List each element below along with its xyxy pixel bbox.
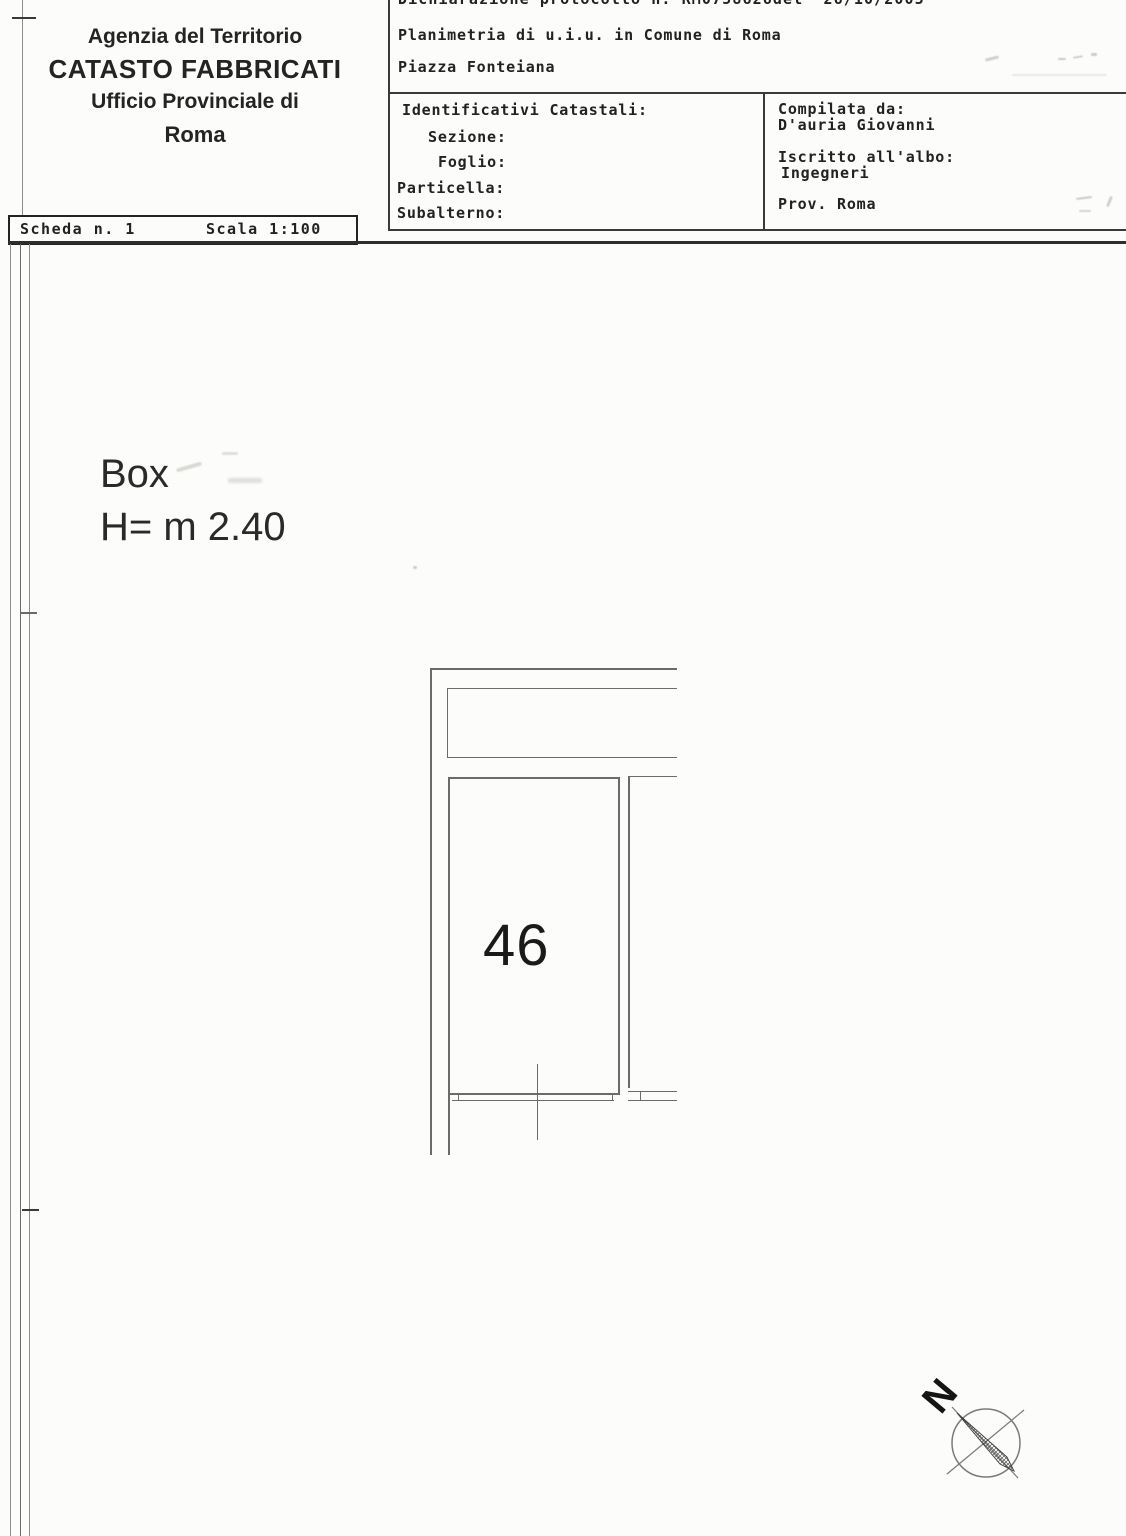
subalterno-label: Subalterno: (397, 204, 505, 222)
plan-neighbor-wall-top (628, 776, 677, 777)
plan-right-extension-bottom (628, 1100, 677, 1101)
sezione-label: Sezione: (428, 128, 507, 146)
registration-tick-low (22, 1209, 39, 1211)
scan-artifact (1091, 53, 1097, 56)
plan-outer-wall-top (430, 668, 677, 670)
particella-label: Particella: (397, 179, 505, 197)
plan-right-extension-top (628, 1091, 677, 1092)
plan-room-wall-top (448, 777, 620, 779)
protocol-line: Dichiarazione protocollo n. RM0758626del… (398, 0, 925, 8)
scan-artifact (176, 461, 202, 472)
scala-value: Scala 1:100 (206, 220, 322, 238)
plan-room-wall-bottom-inner (452, 1100, 614, 1101)
plan-room-wall-left (448, 777, 450, 1155)
plan-room-wall-right (618, 777, 620, 1095)
plan-right-extension-tick (640, 1092, 641, 1100)
plan-neighbor-wall-vertical (628, 776, 630, 1088)
header-table-bottom-border (388, 229, 1126, 231)
header-table-divider-h (388, 92, 1126, 94)
header-table-divider-v (763, 92, 765, 231)
fold-line-top (22, 0, 23, 243)
room-number: 46 (483, 912, 563, 979)
plan-corridor-left (447, 688, 448, 758)
foglio-label: Foglio: (438, 153, 507, 171)
registration-tick-top (12, 17, 36, 19)
compilata-name: D'auria Giovanni (778, 116, 935, 134)
plan-door-axis-line (537, 1064, 538, 1140)
catasto-title: CATASTO FABBRICATI (35, 52, 355, 86)
sheet-left-border-inner (20, 244, 21, 1536)
registration-tick-mid (20, 612, 37, 614)
office-city: Roma (35, 118, 355, 152)
plan-room-wall-bottom-outer (448, 1093, 620, 1095)
address-line: Piazza Fonteiana (398, 58, 555, 76)
header-table-left-border (388, 0, 390, 231)
scan-artifact (1073, 55, 1083, 59)
identificativi-title: Identificativi Catastali: (402, 101, 648, 119)
scan-artifact (985, 55, 999, 61)
scan-artifact (1079, 210, 1091, 212)
planimetria-line: Planimetria di u.i.u. in Comune di Roma (398, 26, 781, 44)
albo-value: Ingegneri (781, 164, 869, 182)
scanned-cadastral-sheet: Agenzia del Territorio CATASTO FABBRICAT… (0, 0, 1126, 1536)
scan-artifact (1076, 196, 1092, 200)
scan-artifact (1106, 196, 1113, 207)
plan-outer-wall-left (430, 668, 432, 1155)
scan-artifact (228, 478, 262, 483)
sheet-left-border-outer (10, 244, 11, 1536)
room-height-label: H= m 2.40 (100, 505, 286, 550)
agency-letterhead: Agenzia del Territorio CATASTO FABBRICAT… (35, 22, 355, 152)
scan-artifact (1012, 74, 1107, 76)
prov-label: Prov. Roma (778, 195, 876, 213)
plan-bottom-wall-tick-left (458, 1094, 459, 1101)
scheda-number: Scheda n. 1 (20, 220, 136, 238)
compass-needle (957, 1413, 1014, 1471)
fold-line-bottom (29, 244, 30, 1536)
scan-artifact (1058, 58, 1066, 60)
plan-corridor-top (447, 688, 677, 689)
agency-name: Agenzia del Territorio (35, 22, 355, 52)
scan-artifact (222, 452, 238, 455)
plan-corridor-bottom (447, 757, 677, 758)
plan-bottom-wall-tick-right (612, 1094, 613, 1101)
scan-artifact (413, 566, 417, 569)
office-line: Ufficio Provinciale di (35, 86, 355, 118)
sheet-top-border (8, 241, 1126, 244)
room-type-label: Box (100, 452, 169, 497)
